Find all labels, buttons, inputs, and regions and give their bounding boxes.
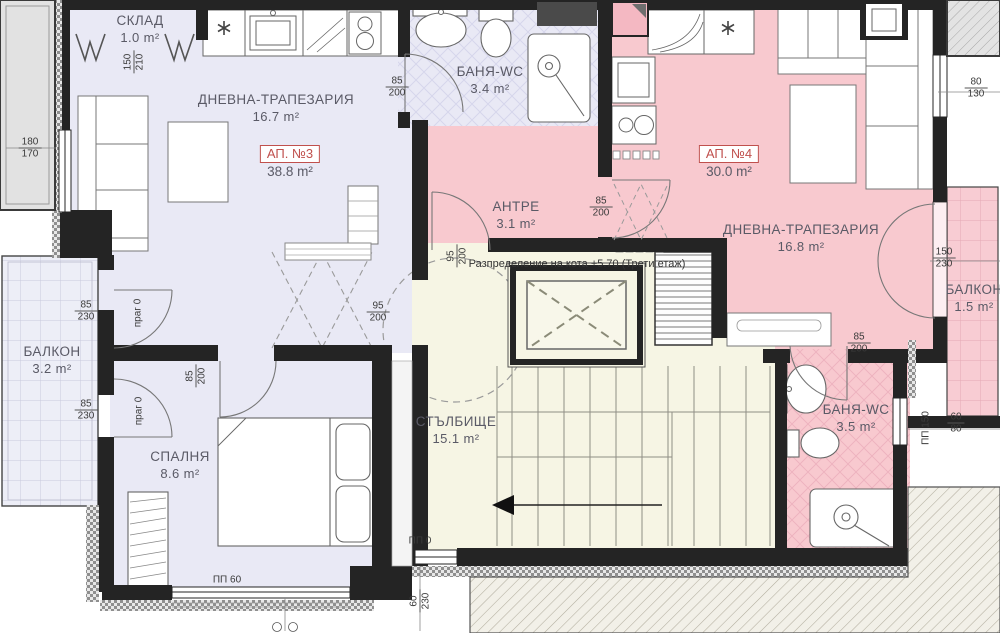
dim-bedroom-door: 85200 [185,365,208,388]
pillow [336,424,370,480]
room-area: 16.8 m² [723,238,879,255]
shower-icon [528,34,590,122]
dim-antre-entry-door: 95200 [446,245,469,268]
room-name: БАНЯ-WC [457,63,524,80]
room-area: 1.5 m² [945,298,1000,315]
room-name: ДНЕВНА-ТРАПЕЗАРИЯ [198,91,354,108]
table-ap4 [790,85,856,183]
dim-window-bath4-size: 6080 [947,412,964,435]
apartment-id: АП. №3 [260,145,320,163]
room-name: БАНЯ-WC [823,401,890,418]
apartment-area: 38.8 m² [260,164,320,180]
dim-sklad-door: 150210 [123,51,146,74]
niche-shelf [285,243,371,260]
pillow [336,486,370,542]
room-area: 3.1 m² [492,215,539,232]
room-area: 3.4 m² [457,80,524,97]
tv-unit-ap3 [348,186,378,244]
plan-title: Разпределение на кота +5.70 (Трети етаж) [469,258,686,270]
room-area: 3.5 m² [823,418,890,435]
room-label-bath4: БАНЯ-WC 3.5 m² [823,401,890,435]
room-name: БАЛКОН [945,281,1000,298]
room-label-living4: ДНЕВНА-ТРАПЕЗАРИЯ 16.8 m² [723,221,879,255]
room-name: СПАЛНЯ [150,448,210,465]
room-label-bath3: БАНЯ-WC 3.4 m² [457,63,524,97]
toilet-icon [481,19,511,57]
dim-ap3-entry-door: 95200 [367,301,390,324]
kitchen-counter-ap3 [203,10,403,56]
dim-threshold-lower: праг 0 [134,397,145,426]
room-label-antre: АНТРЕ 3.1 m² [492,198,539,232]
room-label-staircase: СТЪЛБИЩЕ 15.1 m² [416,413,497,447]
dim-bath4-door: 85200 [848,332,871,355]
toilet-tank [787,430,799,457]
room-name: АНТРЕ [492,198,539,215]
dim-balcony-door-right: 150230 [933,247,956,270]
room-name: СКЛАД [116,12,163,29]
dim-window-east: 80130 [965,77,988,100]
room-label-living3: ДНЕВНА-ТРАПЕЗАРИЯ 16.7 m² [198,91,354,125]
sink-icon [416,13,466,47]
dim-antre-door: 85200 [590,196,613,219]
tv-bench-ap4 [727,313,831,346]
room-area: 1.0 m² [116,29,163,46]
room-label-balcony-left: БАЛКОН 3.2 m² [23,343,80,377]
apartment-4-badge: АП. №4 30.0 m² [699,145,759,180]
dim-bath3-door: 85200 [386,76,409,99]
dim-balcony-door-lower: 85230 [75,399,98,422]
room-area: 8.6 m² [150,465,210,482]
room-name: ДНЕВНА-ТРАПЕЗАРИЯ [723,221,879,238]
room-area: 3.2 m² [23,360,80,377]
room-area: 16.7 m² [198,108,354,125]
room-label-bedroom: СПАЛНЯ 8.6 m² [150,448,210,482]
dim-window-bath4-label: ПП 150 [921,411,932,445]
room-name: СТЪЛБИЩЕ [416,413,497,430]
apartment-area: 30.0 m² [699,164,759,180]
dim-balcony-door-upper: 85230 [75,300,98,323]
bed-icon [218,418,376,546]
dim-window-stair-size: 60230 [409,590,432,613]
floor-plan: Разпределение на кота +5.70 (Трети етаж)… [0,0,1000,633]
dim-window-bedroom: ПП 60 [213,575,241,586]
elevator-icon [508,263,645,367]
room-label-sklad: СКЛАД 1.0 m² [116,12,163,46]
table-ap3 [168,122,228,202]
apartment-id: АП. №4 [699,145,759,163]
wardrobe-icon [128,492,168,586]
room-name: БАЛКОН [23,343,80,360]
dim-window-stair: ПП 0 [409,536,432,547]
dim-threshold-upper: праг 0 [133,299,144,328]
apartment-3-badge: АП. №3 38.8 m² [260,145,320,180]
dim-window-west: 180170 [19,137,42,160]
room-label-balcony-right: БАЛКОН 1.5 m² [945,281,1000,315]
room-area: 15.1 m² [416,430,497,447]
